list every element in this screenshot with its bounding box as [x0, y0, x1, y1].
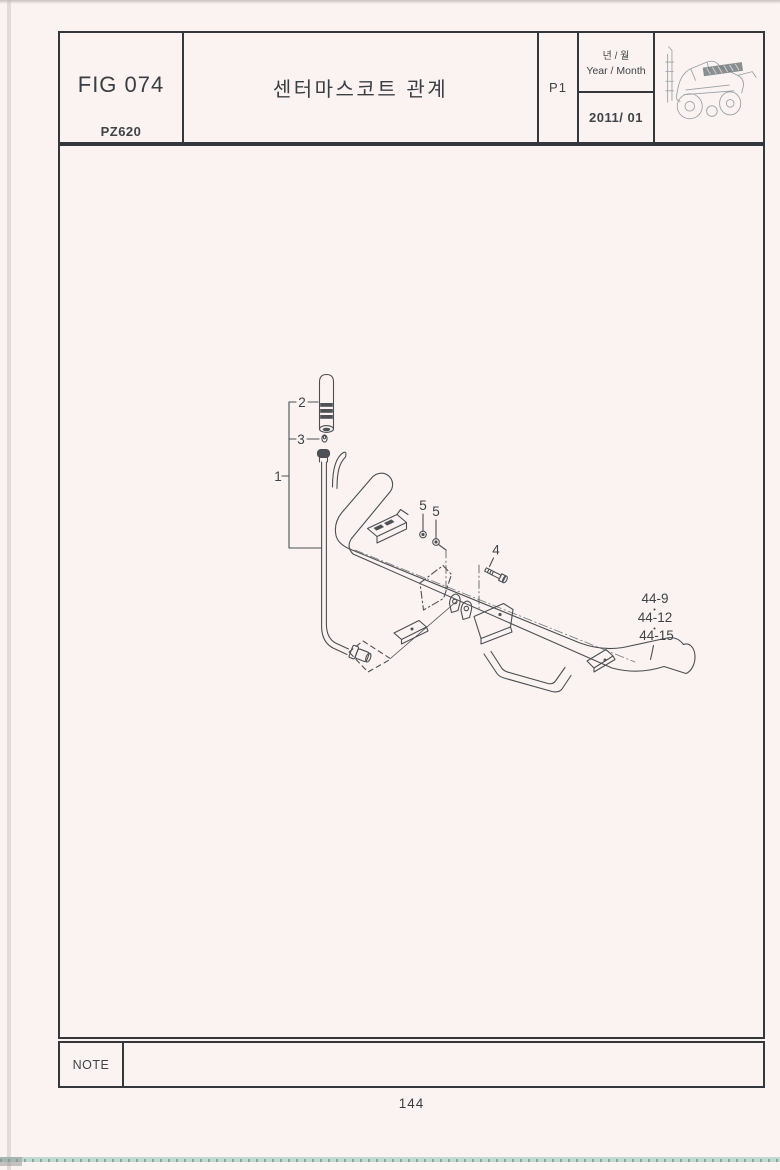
year-month-korean: 년 / 월 [603, 47, 630, 62]
figure-id-cell: FIG 074 PZ620 [60, 33, 184, 142]
callout-1: 1 [274, 469, 282, 484]
year-month-cell: 년 / 월 Year / Month 2011/ 01 [579, 33, 655, 142]
parts-catalog-page: FIG 074 PZ620 센터마스코트 관계 P1 년 / 월 Year / … [0, 0, 780, 1170]
ref-label-44-9: 44-9 [641, 591, 668, 606]
bumper-tube-bottom [349, 493, 686, 674]
bumper-tube-end-cap [684, 644, 696, 674]
machine-thumbnail-cell [655, 33, 763, 142]
ref-label-44-12: 44-12 [638, 610, 673, 625]
note-box: NOTE [58, 1041, 765, 1088]
bolt-4 [484, 566, 508, 583]
bracket-plate-b [474, 604, 513, 639]
bumper-arm-cap [372, 473, 393, 492]
note-content [124, 1043, 763, 1086]
figure-title: 센터마스코트 관계 [184, 33, 539, 142]
figure-number: FIG 074 [78, 72, 164, 98]
scan-artifact-top [0, 0, 780, 4]
part-rod [322, 462, 347, 655]
rod-hook [333, 452, 346, 488]
transplanter-sketch-icon [657, 37, 761, 138]
note-label: NOTE [60, 1043, 124, 1086]
bracket-plate-a [420, 566, 452, 611]
callout-5a: 5 [419, 498, 427, 513]
callout-3: 3 [297, 432, 305, 447]
page-number: 144 [58, 1096, 765, 1111]
ref-label-44-15: 44-15 [639, 628, 674, 643]
page-ref: P1 [539, 33, 579, 142]
model-code: PZ620 [60, 124, 182, 139]
callout-2: 2 [298, 395, 306, 410]
year-month-value: 2011/ 01 [579, 93, 653, 142]
callout-5b: 5 [432, 504, 440, 519]
mount-pad-right [587, 650, 615, 673]
scan-artifact-bottom [0, 1155, 780, 1165]
exploded-parts-drawing: 2 3 1 5 5 4 44-9 44-12 44-15 [60, 146, 763, 1037]
bolt-5a [420, 531, 427, 538]
bumper-step-bar [484, 654, 571, 692]
year-month-english: Year / Month [586, 65, 645, 77]
callout-bracket [282, 402, 321, 548]
bolt-5b [433, 539, 440, 546]
diagram-area: 2 3 1 5 5 4 44-9 44-12 44-15 [58, 144, 765, 1039]
callout-4: 4 [492, 543, 500, 558]
part-grip-cap [320, 375, 334, 430]
scan-artifact-blob [0, 1157, 22, 1166]
year-month-heading: 년 / 월 Year / Month [579, 33, 653, 93]
rod-collar [318, 450, 330, 458]
scan-artifact-left [7, 0, 11, 1170]
header: FIG 074 PZ620 센터마스코트 관계 P1 년 / 월 Year / … [58, 31, 765, 144]
